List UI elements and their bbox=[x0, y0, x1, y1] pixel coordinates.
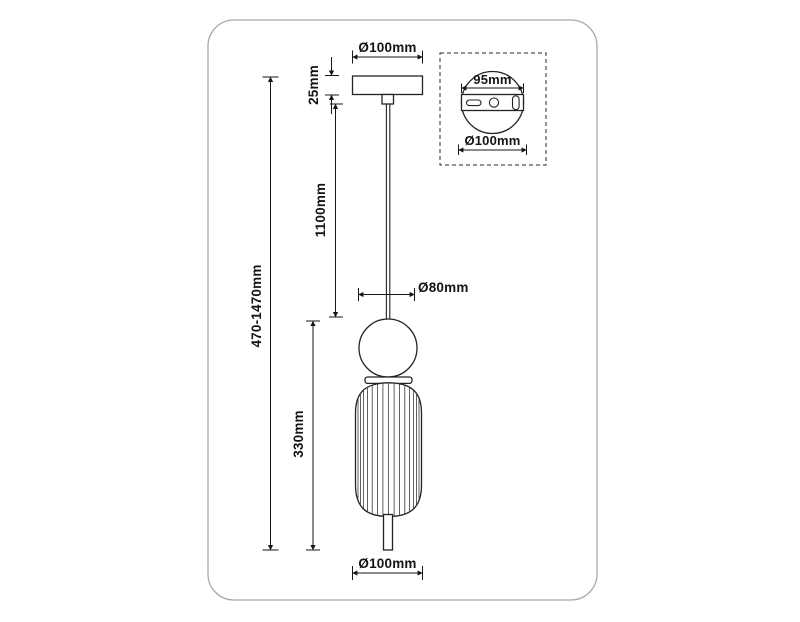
dimension-drawing-page: Ø100mm 25mm 1100mm Ø80mm 330mm 470-1470m… bbox=[0, 0, 800, 622]
dim-sphere-diameter: Ø80mm bbox=[359, 280, 469, 301]
pendant-lamp-dimension-diagram: Ø100mm 25mm 1100mm Ø80mm 330mm 470-1470m… bbox=[0, 0, 800, 622]
dim-mount-plate-diameter: Ø100mm bbox=[459, 133, 527, 155]
canopy-diameter-label: Ø100mm bbox=[358, 40, 416, 55]
dim-canopy-height: 25mm bbox=[306, 57, 339, 114]
mount-bracket-bar bbox=[462, 95, 524, 111]
canopy-connector bbox=[382, 95, 394, 105]
lamp-side-view bbox=[353, 76, 423, 550]
dim-shade-diameter: Ø100mm bbox=[353, 556, 423, 580]
dim-canopy-diameter: Ø100mm bbox=[353, 40, 423, 64]
dim-cable-length: 1100mm bbox=[313, 104, 343, 317]
dim-overall-height: 470-1470mm bbox=[249, 77, 279, 550]
cable-length-label: 1100mm bbox=[313, 183, 328, 238]
mount-plate-diameter-label: Ø100mm bbox=[464, 133, 520, 148]
shade-height-label: 330mm bbox=[291, 410, 306, 458]
dim-shade-height: 330mm bbox=[291, 321, 320, 550]
canopy-height-label: 25mm bbox=[306, 65, 321, 105]
mount-hole-spacing-label: 95mm bbox=[473, 72, 511, 87]
ceiling-canopy bbox=[353, 76, 423, 95]
sphere-diffuser bbox=[359, 319, 417, 377]
shade-diameter-label: Ø100mm bbox=[358, 556, 416, 571]
overall-height-label: 470-1470mm bbox=[249, 264, 264, 347]
sphere-diameter-label: Ø80mm bbox=[418, 280, 469, 295]
bottom-stem bbox=[384, 515, 393, 551]
mount-detail-inset: 95mm Ø100mm bbox=[440, 53, 546, 165]
